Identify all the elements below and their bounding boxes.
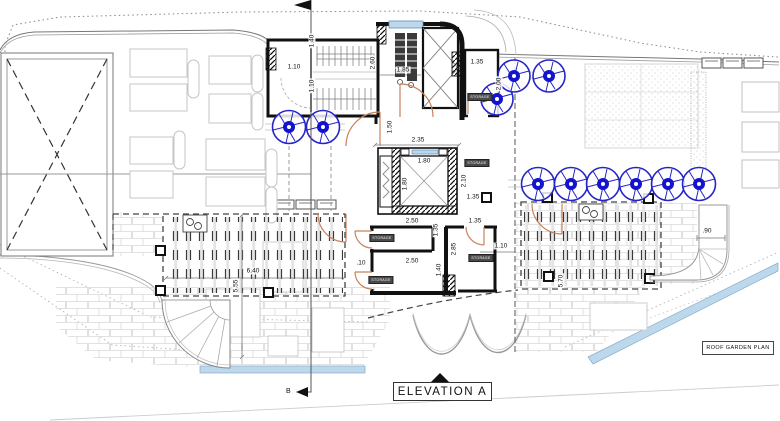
pergola-post — [156, 286, 165, 295]
section-marker-b-label: B — [286, 388, 291, 395]
side-table — [252, 93, 263, 130]
storage-label: STORAGE — [468, 254, 493, 262]
plan-title-text: ROOF GARDEN PLAN — [706, 345, 769, 351]
dim-lift-shaft: 2.35 — [411, 137, 426, 144]
lawn-patch — [585, 64, 698, 148]
elevation-a-label: ELEVATION A — [393, 382, 492, 401]
tree-icon — [652, 168, 685, 201]
pergola-post — [544, 272, 553, 281]
roof-garden-plan-canvas: 1.10 1.40 1.10 2.60 1.85 1.35 2.00 1.50 … — [0, 0, 780, 421]
dim-lift-cab-depth: 1.80 — [402, 177, 409, 192]
window-strip — [389, 21, 423, 28]
window-strip — [412, 150, 438, 154]
pergola-post — [264, 288, 273, 297]
dim-stair-well: 2.60 — [370, 56, 377, 71]
planting-strip — [691, 72, 706, 178]
plan-title-box: ROOF GARDEN PLAN — [702, 341, 774, 355]
section-arrow-icon — [296, 387, 308, 397]
dim-lift-cab-width: 1.80 — [417, 158, 432, 165]
dim-storage-right-depth: 2.85 — [451, 242, 458, 257]
side-table — [174, 131, 185, 169]
stair-block — [266, 40, 378, 116]
sun-lounger — [130, 137, 173, 164]
dim-stair-flight-upper: 1.40 — [309, 34, 316, 49]
storage-label: STORAGE — [368, 276, 393, 284]
dim-storage-bottom-width: 2.50 — [405, 258, 420, 265]
dim-ne-room-depth: 2.00 — [496, 77, 503, 92]
side-table — [252, 55, 263, 92]
elevation-a-text: ELEVATION A — [398, 386, 488, 398]
sun-lounger — [206, 139, 265, 170]
dim-lift-side-width: 1.35 — [466, 194, 481, 201]
dim-pergola-left-depth: 5.55 — [233, 279, 240, 294]
storage-label: STORAGE — [464, 159, 489, 167]
section-arrow-icon — [294, 0, 311, 10]
mechanical-unit — [395, 33, 417, 88]
dim-ne-room-width: 1.35 — [470, 59, 485, 66]
tree-icon — [498, 60, 530, 92]
tree-icon — [555, 168, 588, 201]
dim-storage-top-gap: 1.35 — [468, 218, 483, 225]
tree-icon — [620, 168, 653, 201]
dim-walkway-width: .90 — [701, 228, 712, 235]
plan-linework — [0, 0, 780, 421]
pergola-post — [156, 246, 165, 255]
dim-storage-top-width: 2.50 — [405, 218, 420, 225]
dim-pergola-west-gap: .10 — [355, 260, 366, 267]
dim-stair-flight-lower: 1.10 — [309, 79, 316, 94]
paving-slab — [312, 308, 344, 352]
paving-slab — [590, 303, 647, 330]
sun-lounger — [209, 94, 251, 123]
dim-storage-bottom-depth: 1.40 — [436, 263, 443, 278]
dim-stair-side-room: 1.10 — [287, 64, 302, 71]
dim-terrace-east-gap: 1.10 — [494, 243, 509, 250]
dim-lobby: 1.50 — [387, 120, 394, 135]
dim-lift-side-depth: 2.10 — [461, 174, 468, 189]
elevation-arrow-icon — [431, 373, 449, 382]
dim-corridor: 1.85 — [396, 67, 411, 74]
dim-storage-top-depth: 1.35 — [433, 223, 440, 238]
tree-icon — [533, 60, 565, 92]
canopy-swags — [413, 313, 526, 354]
sun-lounger — [130, 171, 173, 198]
sun-lounger — [206, 177, 265, 206]
outdoor-sink — [183, 215, 207, 232]
side-table — [188, 60, 199, 98]
outdoor-sink — [579, 204, 603, 220]
skylight-void — [1, 53, 113, 256]
tree-icon — [683, 168, 716, 201]
sun-lounger — [130, 49, 187, 77]
storage-label: STORAGE — [369, 234, 394, 242]
tree-icon — [522, 168, 555, 201]
paving-slab — [268, 336, 298, 356]
sun-lounger — [130, 84, 187, 111]
sun-lounger — [209, 56, 251, 84]
side-table — [266, 149, 277, 187]
storage-label: STORAGE — [467, 93, 492, 101]
tree-icon — [587, 168, 620, 201]
pergola-post — [482, 193, 491, 202]
dim-pergola-right-depth: 5.70 — [558, 274, 565, 289]
tree-icon — [273, 111, 306, 144]
dim-pergola-left-width: 6.40 — [246, 268, 261, 275]
service-shaft — [376, 21, 464, 124]
